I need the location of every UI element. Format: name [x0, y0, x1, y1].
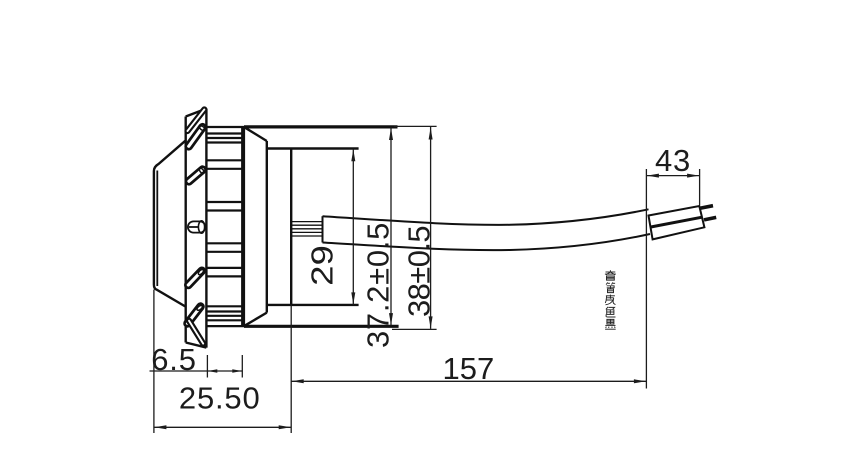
svg-text:29: 29 — [305, 245, 340, 286]
svg-text:157: 157 — [443, 351, 495, 386]
svg-text:6.5: 6.5 — [151, 342, 197, 377]
svg-text:43: 43 — [655, 143, 691, 178]
svg-text:25.50: 25.50 — [179, 380, 261, 415]
svg-text:38±0.5: 38±0.5 — [401, 226, 436, 317]
svg-text:37.2±0.5: 37.2±0.5 — [361, 222, 396, 348]
